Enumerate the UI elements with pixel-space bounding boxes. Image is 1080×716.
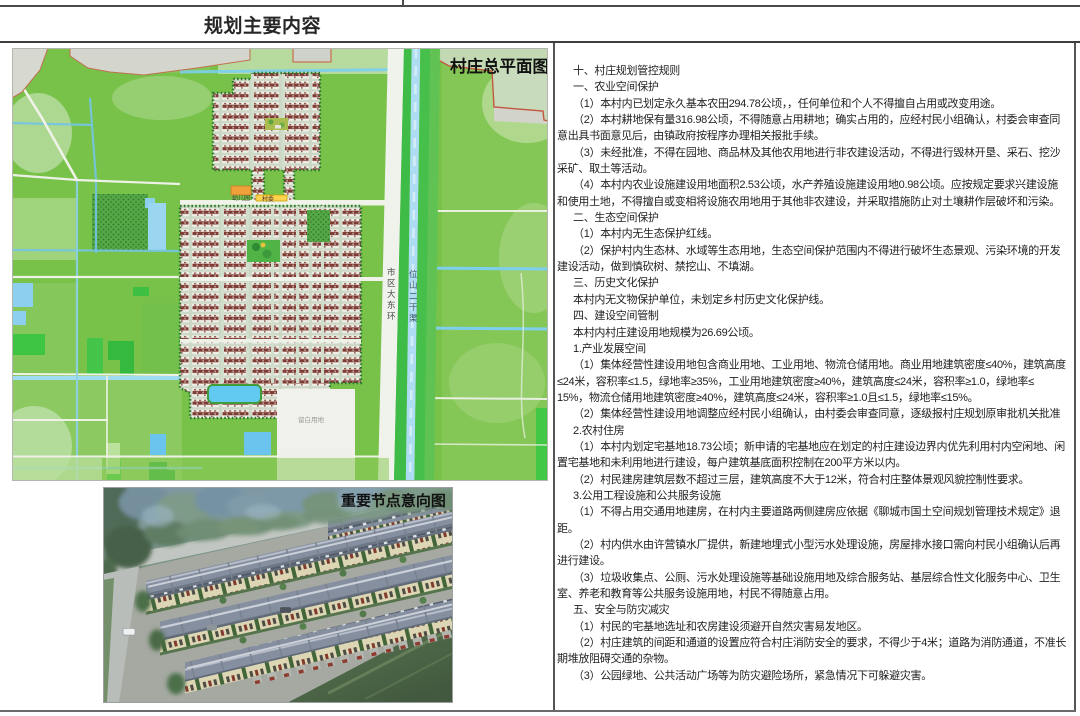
svg-text:大: 大	[387, 289, 396, 299]
svg-text:东: 东	[387, 300, 396, 310]
svg-text:区: 区	[387, 278, 396, 288]
svg-text:市: 市	[387, 267, 396, 277]
svg-text:干: 干	[409, 302, 418, 312]
svg-text:环: 环	[387, 311, 396, 321]
svg-text:重要节点意向图: 重要节点意向图	[341, 492, 446, 510]
svg-text:山: 山	[409, 280, 418, 290]
svg-text:村庄总平面图: 村庄总平面图	[450, 56, 548, 76]
svg-text:渠: 渠	[409, 313, 418, 323]
svg-text:留白用地: 留白用地	[298, 415, 325, 424]
svg-text:二: 二	[409, 291, 418, 301]
svg-text:村委: 村委	[262, 195, 274, 203]
svg-text:位: 位	[409, 269, 418, 279]
svg-text:幼儿园: 幼儿园	[232, 194, 250, 202]
